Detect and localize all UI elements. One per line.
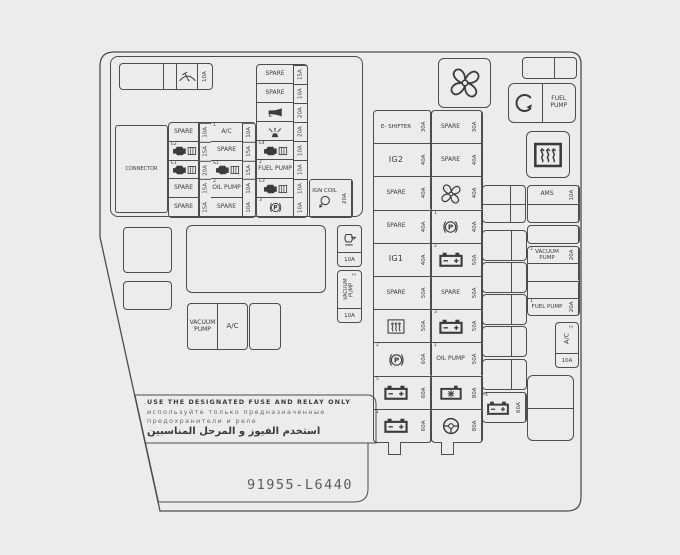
- warning-line-ru1: используйте только предназначенные: [147, 408, 375, 416]
- rear-defrost-icon: [533, 141, 563, 169]
- fuse-label: SPARE: [211, 142, 243, 161]
- connector-label: CONNECTOR: [125, 166, 157, 172]
- amp-rating: 10A: [338, 252, 361, 266]
- ign-coil-fuse: IGN COIL 20A: [309, 179, 353, 218]
- amp-rating: 30A: [469, 111, 482, 143]
- fuse-label: SPARE: [374, 277, 418, 309]
- fuse-slot: [527, 225, 580, 244]
- coolant-pump-icon: [342, 231, 357, 248]
- warning-text: USE THE DESIGNATED FUSE AND RELAY ONLY и…: [147, 398, 375, 437]
- relay-slot: [482, 262, 527, 293]
- fuse-cell: [177, 64, 198, 89]
- relay-slot: [482, 326, 527, 357]
- empty-slot: [511, 263, 526, 292]
- fuse-label: SPARE: [169, 198, 199, 217]
- empty-slot: [511, 360, 526, 389]
- fuse-cell: [432, 410, 469, 442]
- fuse-cell: [257, 122, 294, 141]
- empty-slot: [566, 205, 579, 223]
- fuse-cell: [338, 226, 361, 252]
- fuse-cell: E4: [257, 141, 294, 160]
- amp-rating: 80A: [469, 377, 482, 409]
- empty-slot: [511, 295, 526, 324]
- fuse-cell: 2: [432, 244, 469, 276]
- fuse-column-right: SPARE 15A SPARE 10A 20A 20A E4 10A 2FUEL…: [256, 64, 308, 218]
- amp-rating: 10A: [294, 160, 307, 179]
- fuse-cell: 1VACUUM PUMP: [528, 247, 566, 263]
- empty-slot: [566, 226, 579, 243]
- fuse-ac-2: 2A/C 10A: [555, 322, 579, 368]
- relay-pair-slot: [482, 185, 526, 223]
- fuse-label: SPARE: [257, 65, 294, 84]
- relay-slot: [482, 230, 527, 261]
- empty-slot: [164, 64, 177, 89]
- amp-rating: 10A: [243, 123, 255, 142]
- fuse-cell: S1: [211, 161, 243, 180]
- empty-slot: [528, 376, 573, 408]
- wiper-fuse-strip: 10A: [119, 63, 213, 90]
- starred-battery-icon: [439, 385, 463, 400]
- amp-rating: 50A: [469, 310, 482, 342]
- fuse-label: AMS: [528, 186, 566, 204]
- amp-rating: 30A: [418, 111, 431, 143]
- relay-slot: [123, 227, 172, 273]
- fuse-vacuum-pump-2: 2VACUUM PUMP 10A: [337, 270, 362, 323]
- amp-rating: 50A: [469, 343, 482, 375]
- wiper-icon: [178, 70, 197, 83]
- fuse-cell: 1FUEL PUMP: [528, 299, 566, 315]
- empty-slot: [483, 360, 511, 389]
- amp-rating: 10A: [243, 179, 255, 198]
- empty-slot: [554, 58, 576, 78]
- empty-slot: [528, 226, 566, 243]
- fuse-cell: 3: [257, 198, 294, 217]
- relay-label: FUEL PUMP: [542, 84, 576, 122]
- empty-slot: [483, 186, 510, 204]
- ac-relay: A/C: [218, 304, 247, 349]
- amp-rating: 50A: [418, 310, 431, 342]
- warning-line-ru2: предохранители и реле: [147, 417, 375, 425]
- amp-rating: 20A: [294, 103, 307, 122]
- fuse-label: 2VACUUM PUMP: [338, 271, 361, 308]
- fuse-label: SPARE: [169, 123, 199, 142]
- fuse-label: E- SHIFTER: [374, 111, 418, 143]
- fuse-label: 2A/C: [556, 323, 578, 353]
- fuse-cell: 1OIL PUMP: [432, 343, 469, 375]
- fuse-cell: [257, 103, 294, 122]
- amp-rating: 40A: [418, 144, 431, 176]
- empty-slot: [483, 205, 510, 223]
- fuse-cell: 3: [432, 310, 469, 342]
- empty-slot: [483, 295, 511, 324]
- amp-rating: 15A: [294, 65, 307, 84]
- amp-rating: 20A: [294, 122, 307, 141]
- empty-slot: [523, 58, 554, 78]
- amp-rating: 10A: [338, 308, 361, 322]
- fuse-cell: 5: [374, 377, 418, 409]
- amp-rating: 40A: [469, 144, 482, 176]
- fuse-cell: 2OIL PUMP: [211, 179, 243, 198]
- park-brake-icon: [441, 219, 460, 235]
- fuse-label: SPARE: [169, 179, 199, 198]
- amp-rating: 10A: [198, 64, 212, 89]
- empty-slot: [511, 231, 526, 260]
- fuse-cell: [432, 177, 469, 209]
- fuse-cell: 1: [374, 410, 418, 442]
- fuse-label: SPARE: [432, 144, 469, 176]
- empty-slot: [483, 327, 511, 356]
- fan-relay: [438, 58, 491, 108]
- amp-rating: 40A: [469, 211, 482, 243]
- amp-rating: 15A: [199, 179, 211, 198]
- empty-slot: [483, 231, 511, 260]
- fuse-cell: 4: [483, 393, 513, 422]
- amp-rating: 15A: [199, 142, 211, 161]
- empty-slot: [528, 408, 573, 441]
- amp-rating: 60A: [513, 393, 526, 422]
- washer-spray-icon: [266, 125, 284, 138]
- fuse-label: SPARE: [374, 177, 418, 209]
- amp-rating: 60A: [418, 410, 431, 442]
- amp-rating: 40A: [418, 177, 431, 209]
- empty-slot: [483, 263, 511, 292]
- park-brake-icon: [387, 352, 406, 368]
- fuse-cell: 1: [432, 211, 469, 243]
- warning-line-ar: استخدم الفيوز و المرحل المناسبين: [147, 426, 375, 437]
- engine-icon: [262, 183, 288, 194]
- rotation-arrow-icon: [514, 92, 536, 114]
- main-fuse-column-a: E- SHIFTER30A IG240A SPARE40A SPARE40A I…: [373, 110, 432, 443]
- right-fuse-group: 1VACUUM PUMP20A 1FUEL PUMP20A: [527, 246, 580, 316]
- engine-fuse-box-diagram: P: [0, 0, 680, 555]
- warning-line-en: USE THE DESIGNATED FUSE AND RELAY ONLY: [147, 398, 375, 406]
- mount-tab: [388, 442, 401, 455]
- relay-slot: [482, 294, 527, 325]
- connector-slot: CONNECTOR: [115, 125, 168, 213]
- amp-rating: 40A: [418, 211, 431, 243]
- relay-block-slot: [186, 225, 326, 293]
- amp-rating: 15A: [243, 161, 255, 180]
- fuse-label: SPARE: [374, 211, 418, 243]
- amp-rating: 40A: [469, 177, 482, 209]
- vacuum-pump-relay: VACUUM PUMP: [188, 304, 218, 349]
- amp-rating: 10A: [294, 179, 307, 198]
- engine-icon: [262, 145, 288, 156]
- empty-slot: [511, 327, 526, 356]
- heater-waves-icon: [387, 319, 405, 334]
- empty-slot: [510, 186, 525, 204]
- amp-rating: 50A: [469, 277, 482, 309]
- rear-defrost-relay: [526, 131, 570, 178]
- park-brake-icon: [268, 201, 283, 214]
- relay-pair: VACUUM PUMP A/C: [187, 303, 248, 350]
- amp-rating: 10A: [566, 186, 579, 204]
- engine-fuse-panel: 10A CONNECTOR SPARE 10A 1A/C 10A E2 15A …: [110, 56, 363, 217]
- amp-rating: 10A: [199, 123, 211, 142]
- fuse-cell: 2FUEL PUMP: [257, 160, 294, 179]
- amp-rating: 15A: [243, 142, 255, 161]
- horn-icon: [266, 106, 284, 118]
- fuse-label: SPARE: [257, 84, 294, 103]
- amp-rating: 50A: [469, 244, 482, 276]
- empty-slot: [566, 282, 579, 298]
- amp-rating: 15A: [199, 198, 211, 217]
- amp-rating: 40A: [418, 244, 431, 276]
- fan-icon: [439, 182, 463, 206]
- empty-slot: [566, 264, 579, 280]
- amp-rating: 50A: [418, 277, 431, 309]
- amp-rating: 20A: [339, 180, 352, 217]
- fuse-battery-4: 4 60A: [482, 392, 527, 423]
- relay-slot: [482, 359, 527, 390]
- fuse-label: SPARE: [211, 198, 243, 217]
- empty-slot: [120, 64, 164, 89]
- amp-rating: 10A: [294, 198, 307, 217]
- fuse-grid: SPARE 10A 1A/C 10A E2 15A SPARE 15A E1 2…: [168, 122, 256, 218]
- fuse-cell: E1: [169, 161, 199, 180]
- amp-rating: 20A: [199, 161, 211, 180]
- empty-slot: [528, 264, 566, 280]
- amp-rating: 60A: [418, 377, 431, 409]
- mount-tab: [441, 442, 454, 455]
- battery-icon: [383, 418, 409, 433]
- ams-fuse-box: AMS10A: [527, 185, 580, 223]
- amp-rating: 10A: [294, 84, 307, 103]
- fuel-pump-relay: FUEL PUMP: [508, 83, 576, 123]
- relay-slot: [249, 303, 281, 350]
- ignition-coil-icon: [317, 195, 332, 209]
- empty-slot: [528, 205, 566, 223]
- fuse-label: IGN COIL: [312, 188, 337, 194]
- relay-cell: [509, 84, 542, 122]
- fuse-cell: [432, 377, 469, 409]
- fuse-coolant-pump: 10A: [337, 225, 362, 267]
- amp-rating: 10A: [294, 141, 307, 160]
- amp-rating: 20A: [566, 247, 579, 263]
- battery-icon: [383, 385, 409, 400]
- fan-icon: [447, 65, 483, 101]
- fuse-label: IG2: [374, 144, 418, 176]
- amp-rating: 60A: [418, 343, 431, 375]
- steering-icon: [442, 417, 460, 435]
- fuse-cell: E2: [169, 142, 199, 161]
- relay-slot: [123, 281, 172, 310]
- fuse-cell: [374, 310, 418, 342]
- fuse-label: IG1: [374, 244, 418, 276]
- fuse-label: SPARE: [432, 111, 469, 143]
- fuse-cell: 1A/C: [211, 123, 243, 142]
- empty-slot: [528, 282, 566, 298]
- relay-slot: [522, 57, 577, 79]
- main-fuse-column-b: SPARE30A SPARE40A 40A 140A 250A SPARE50A…: [431, 110, 483, 443]
- part-number: 91955-L6440: [200, 477, 400, 493]
- amp-rating: 80A: [469, 410, 482, 442]
- battery-icon: [438, 319, 464, 334]
- empty-slot: [510, 205, 525, 223]
- fuse-cell: 2: [374, 343, 418, 375]
- amp-rating: 10A: [243, 198, 255, 217]
- amp-rating: 10A: [556, 353, 578, 367]
- relay-pair-slot: [527, 375, 574, 441]
- fuse-cell: E3: [257, 179, 294, 198]
- amp-rating: 20A: [566, 299, 579, 315]
- battery-icon: [438, 252, 464, 267]
- battery-icon: [486, 401, 510, 415]
- fuse-label: SPARE: [432, 277, 469, 309]
